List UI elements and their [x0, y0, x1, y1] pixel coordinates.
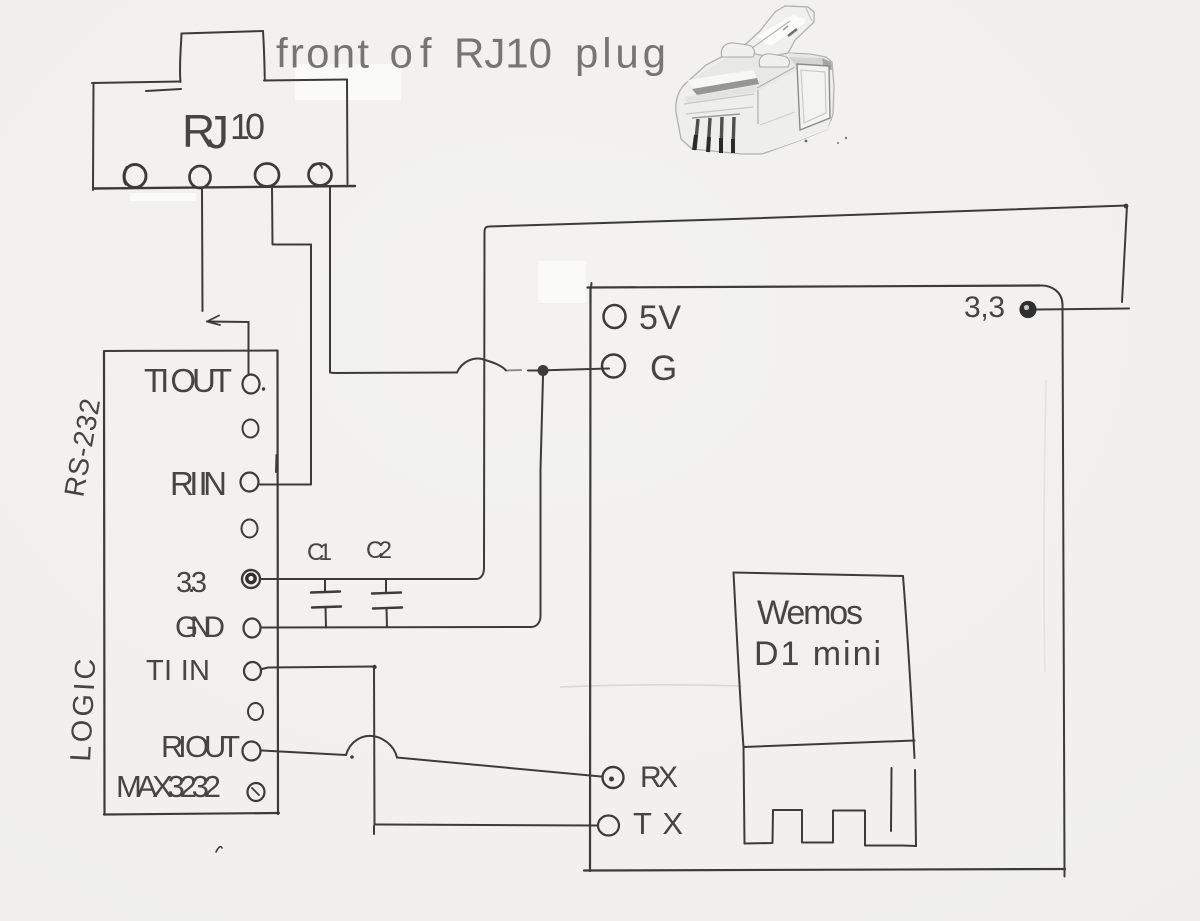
svg-text:plug: plug	[575, 30, 666, 77]
svg-text:RI IN: RI IN	[170, 465, 227, 502]
svg-text:TI IN: TI IN	[146, 655, 210, 687]
svg-text:RI OUT: RI OUT	[161, 729, 240, 764]
svg-text:Wemos: Wemos	[757, 594, 863, 632]
svg-text:RX: RX	[640, 761, 678, 794]
svg-text:3,3: 3,3	[964, 291, 1005, 324]
svg-text:RJ10: RJ10	[454, 30, 552, 77]
svg-text:G: G	[650, 349, 677, 388]
svg-text:LOGIC: LOGIC	[65, 658, 102, 763]
svg-text:TI OUT: TI OUT	[144, 362, 232, 399]
svg-text:C2: C2	[366, 537, 392, 564]
svg-text:C1: C1	[307, 539, 332, 566]
svg-text:0: 0	[245, 106, 265, 147]
svg-text:J: J	[206, 106, 229, 158]
svg-text:3.3: 3.3	[176, 567, 207, 599]
svg-text:MAX3232: MAX3232	[116, 769, 221, 804]
svg-text:of: of	[390, 30, 432, 77]
svg-text:GND: GND	[175, 611, 225, 644]
svg-text:D1 mini: D1 mini	[754, 635, 881, 673]
svg-text:5V: 5V	[639, 299, 681, 337]
